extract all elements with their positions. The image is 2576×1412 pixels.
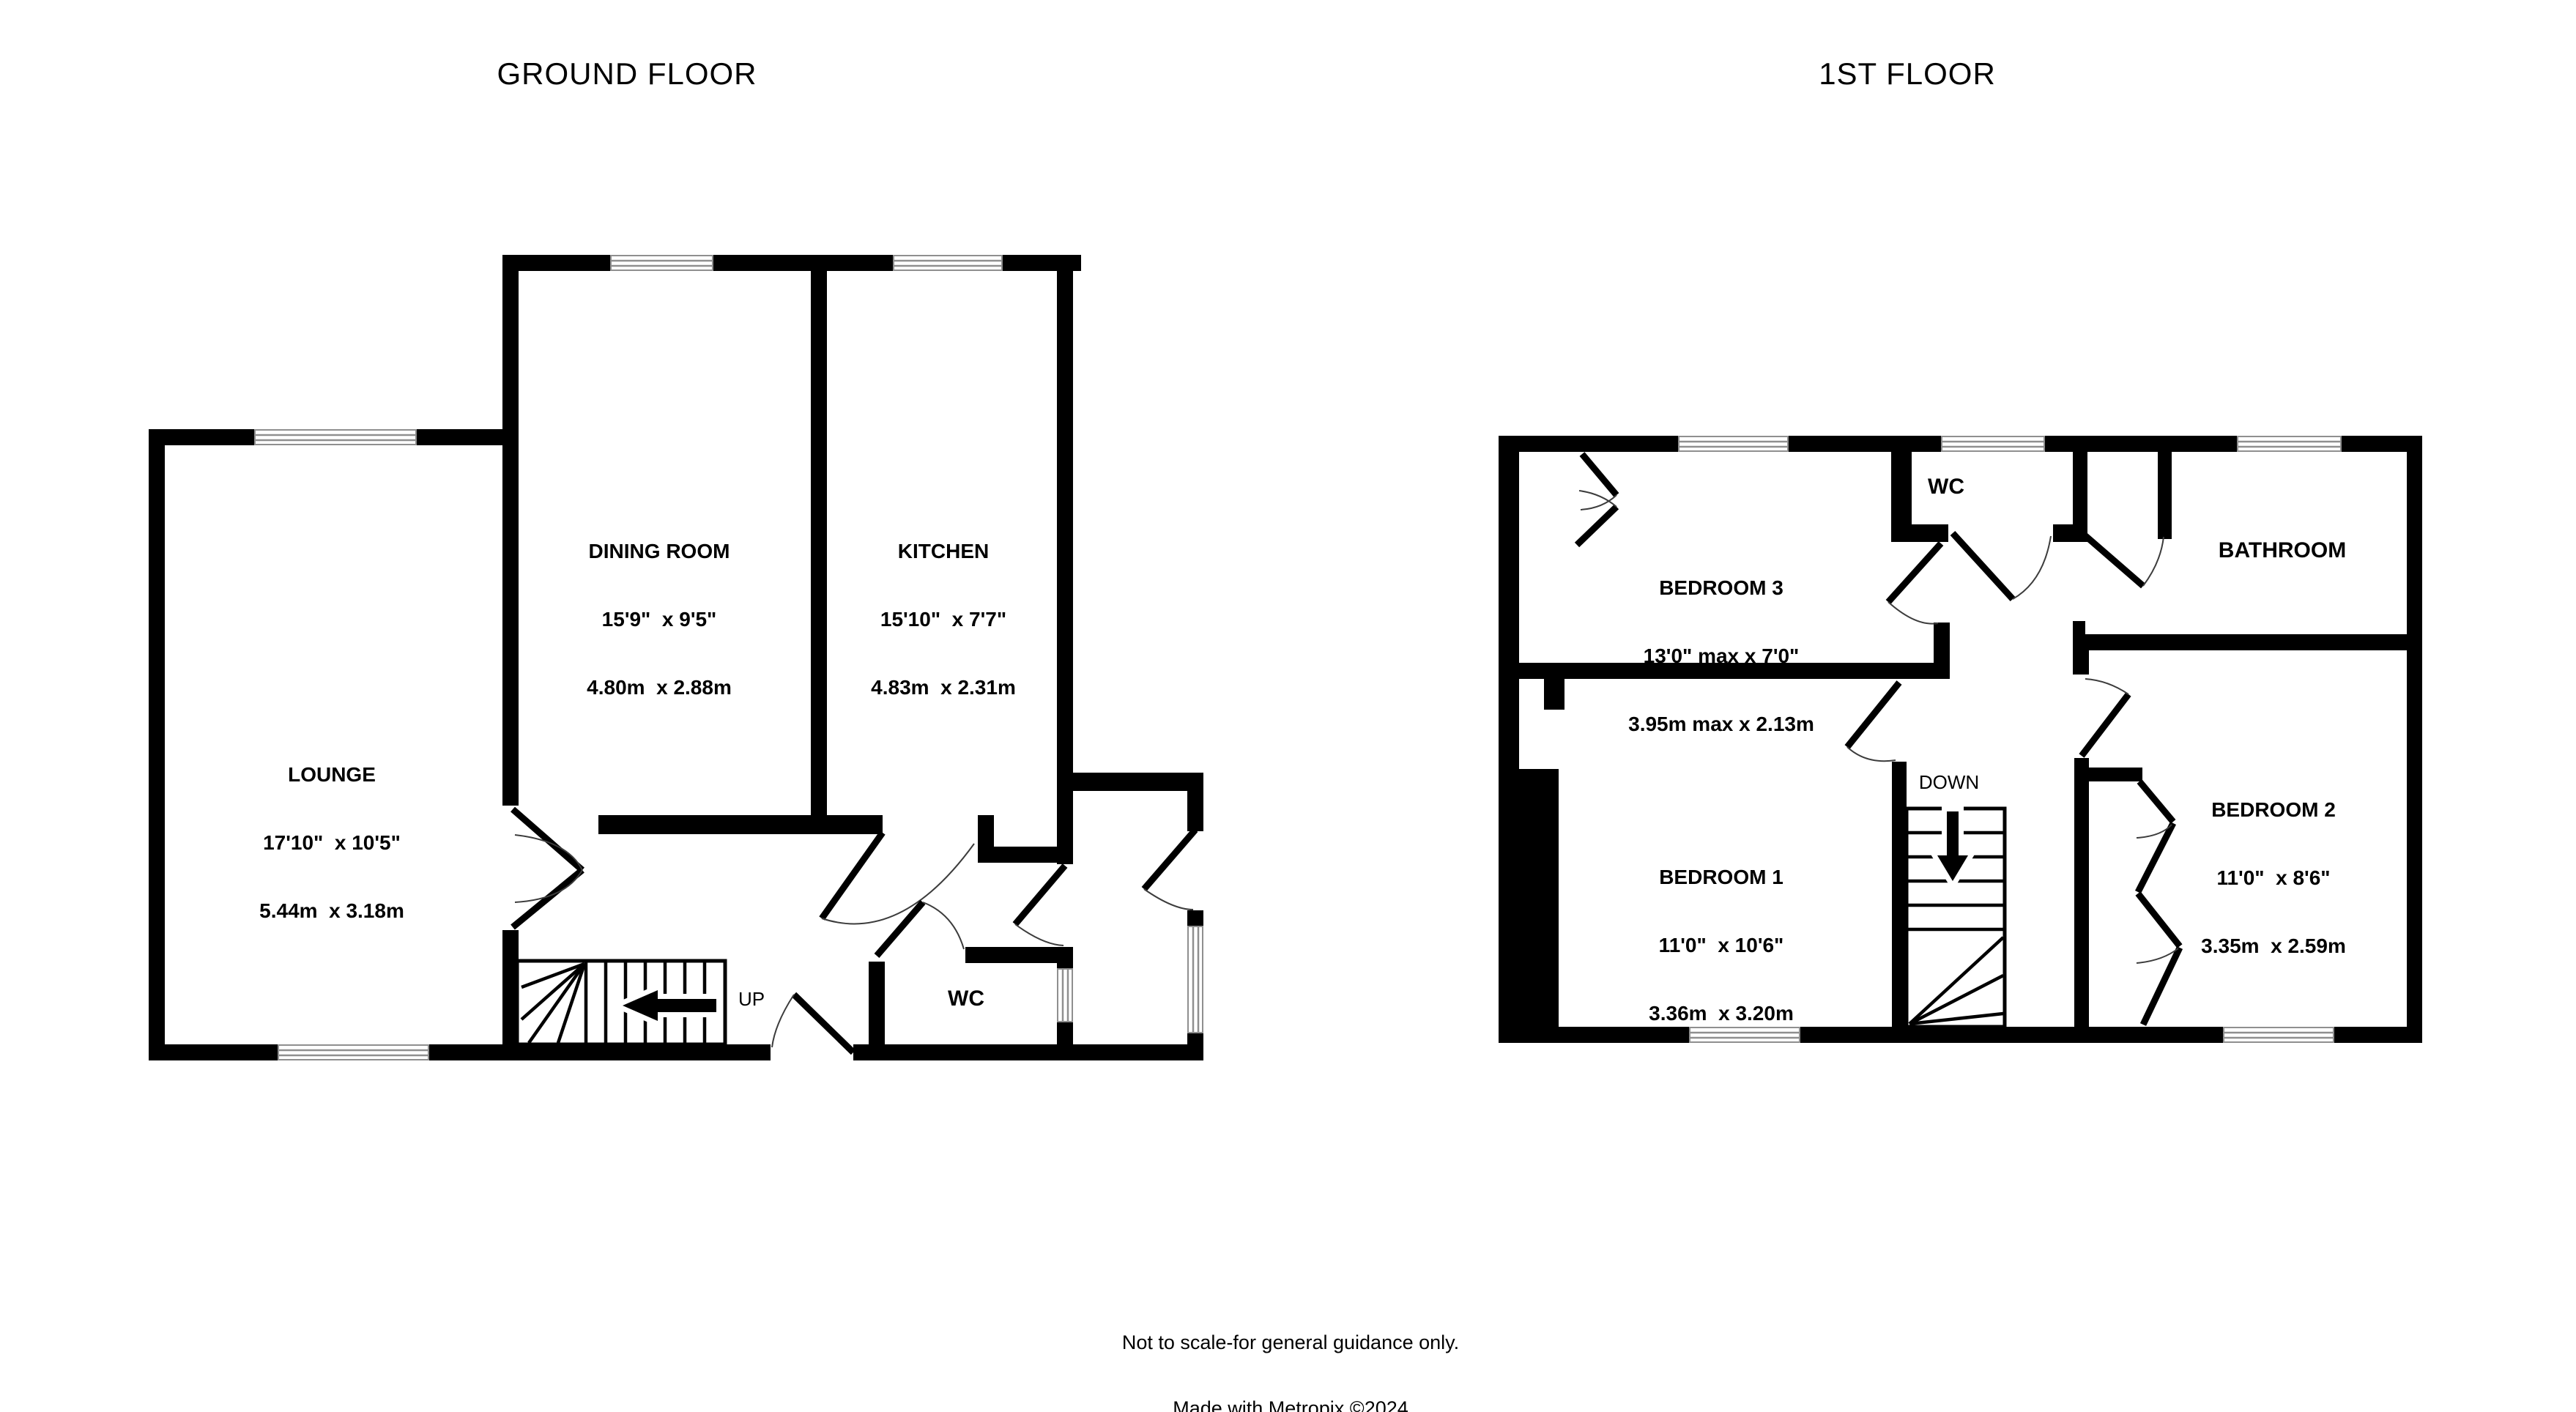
window-lounge-bottom bbox=[278, 1045, 428, 1060]
wc-first-label: WC bbox=[1928, 475, 1964, 498]
wardrobe-bedroom2 bbox=[2137, 781, 2180, 1025]
window-bathroom bbox=[2238, 436, 2341, 451]
cupboard-bedroom3 bbox=[1577, 454, 1617, 545]
bedroom2-imperial: 11'0" x 8'6" bbox=[2201, 866, 2346, 889]
bedroom3-name: BEDROOM 3 bbox=[1628, 576, 1814, 599]
window-dining-top bbox=[611, 256, 713, 270]
bedroom1-name: BEDROOM 1 bbox=[1649, 866, 1794, 888]
floorplan-page: GROUND FLOOR 1ST FLOOR LOUNGE 17'10" x 1… bbox=[0, 0, 2576, 1412]
stairs-down-arrow-icon bbox=[1937, 811, 1968, 881]
bedroom1-metric: 3.36m x 3.20m bbox=[1649, 1002, 1794, 1025]
window-wc-ground bbox=[1058, 969, 1072, 1022]
door-bedroom1 bbox=[1847, 683, 1899, 761]
dining-metric: 4.80m x 2.88m bbox=[587, 676, 732, 699]
kitchen-imperial: 15'10" x 7'7" bbox=[871, 608, 1016, 631]
bedroom3-imperial: 13'0" max x 7'0" bbox=[1628, 644, 1814, 667]
lounge-name: LOUNGE bbox=[259, 763, 404, 786]
disclaimer-line2: Made with Metropix ©2024 bbox=[1122, 1397, 1459, 1412]
door-lobby-porch bbox=[1015, 866, 1065, 945]
bedroom2-name: BEDROOM 2 bbox=[2201, 798, 2346, 821]
stairs-up-arrow-icon bbox=[623, 990, 716, 1021]
bedroom3-metric: 3.95m max x 2.13m bbox=[1628, 713, 1814, 735]
lounge-metric: 5.44m x 3.18m bbox=[259, 899, 404, 922]
lounge-label: LOUNGE 17'10" x 10'5" 5.44m x 3.18m bbox=[259, 718, 404, 945]
bedroom3-label: BEDROOM 3 13'0" max x 7'0" 3.95m max x 2… bbox=[1628, 531, 1814, 758]
window-bedroom2 bbox=[2224, 1028, 2334, 1042]
dining-imperial: 15'9" x 9'5" bbox=[587, 608, 732, 631]
bedroom1-imperial: 11'0" x 10'6" bbox=[1649, 934, 1794, 956]
first-floor-title: 1ST FLOOR bbox=[1819, 62, 1996, 85]
door-lounge-double bbox=[513, 809, 582, 927]
kitchen-label: KITCHEN 15'10" x 7'7" 4.83m x 2.31m bbox=[871, 494, 1016, 721]
bedroom2-label: BEDROOM 2 11'0" x 8'6" 3.35m x 2.59m bbox=[2201, 753, 2346, 980]
front-door-opening bbox=[771, 1043, 853, 1062]
ground-floor-title: GROUND FLOOR bbox=[497, 62, 757, 85]
bathroom-label: BATHROOM bbox=[2219, 539, 2346, 562]
dining-room-label: DINING ROOM 15'9" x 9'5" 4.80m x 2.88m bbox=[587, 494, 732, 721]
door-wc-ground bbox=[877, 902, 964, 956]
window-wc-first bbox=[1942, 436, 2044, 451]
first-floor-stairs bbox=[1907, 809, 2005, 1027]
ground-floor-stairs bbox=[517, 961, 725, 1044]
up-label: UP bbox=[738, 988, 765, 1011]
window-bedroom3 bbox=[1679, 436, 1788, 451]
kitchen-metric: 4.83m x 2.31m bbox=[871, 676, 1016, 699]
bedroom1-label: BEDROOM 1 11'0" x 10'6" 3.36m x 3.20m bbox=[1649, 820, 1794, 1047]
window-porch bbox=[1188, 926, 1203, 1033]
door-bedroom3 bbox=[1888, 543, 1941, 624]
dining-name: DINING ROOM bbox=[587, 540, 732, 562]
window-kitchen-top bbox=[894, 256, 1002, 270]
floorplan-drawing bbox=[0, 0, 2576, 1412]
kitchen-name: KITCHEN bbox=[871, 540, 1016, 562]
wc-ground-label: WC bbox=[948, 987, 984, 1010]
disclaimer: Not to scale-for general guidance only. … bbox=[1122, 1287, 1459, 1412]
door-kitchen bbox=[822, 833, 974, 924]
window-lounge-top bbox=[255, 430, 416, 445]
disclaimer-line1: Not to scale-for general guidance only. bbox=[1122, 1331, 1459, 1353]
door-wc-first bbox=[1953, 533, 2051, 599]
ground-floor-doors bbox=[513, 809, 1195, 1052]
lounge-imperial: 17'10" x 10'5" bbox=[259, 831, 404, 854]
door-bathroom bbox=[2082, 533, 2164, 586]
door-porch-external bbox=[1144, 830, 1195, 910]
down-label: DOWN bbox=[1919, 771, 1979, 794]
door-bedroom2 bbox=[2082, 679, 2128, 756]
bedroom2-metric: 3.35m x 2.59m bbox=[2201, 934, 2346, 957]
